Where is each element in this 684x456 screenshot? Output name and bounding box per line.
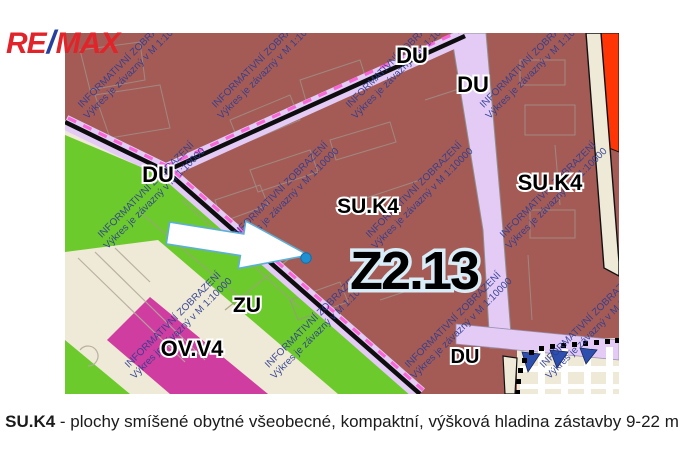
logo-re: RE — [6, 27, 46, 60]
cream-wedge — [503, 356, 517, 394]
listing-image: RE/MAX — [0, 0, 684, 456]
logo-max: MAX — [56, 27, 120, 60]
label-zu: ZU — [233, 294, 261, 317]
location-dot — [301, 253, 311, 263]
label-du-right-top: DU — [457, 72, 489, 97]
logo-slash: / — [46, 24, 56, 60]
label-du-top: DU — [396, 43, 428, 68]
label-du-bottom: DU — [451, 346, 480, 368]
caption-zone-code: SU.K4 — [5, 412, 55, 431]
label-du-left: DU — [142, 162, 174, 187]
label-ov-v4: OV.V4 — [161, 336, 225, 361]
caption: SU.K4 - plochy smíšené obytné všeobecné,… — [0, 412, 684, 432]
label-z2-13: Z2.13 — [350, 241, 479, 301]
remax-logo: RE/MAX — [6, 24, 119, 61]
zoning-map: INFORMATIVNÍ ZOBRAZENÍVýkres je závazný … — [65, 33, 619, 394]
label-su-k4-center: SU.K4 — [337, 195, 399, 218]
caption-description: - plochy smíšené obytné všeobecné, kompa… — [55, 412, 679, 431]
label-su-k4-right: SU.K4 — [518, 170, 584, 195]
